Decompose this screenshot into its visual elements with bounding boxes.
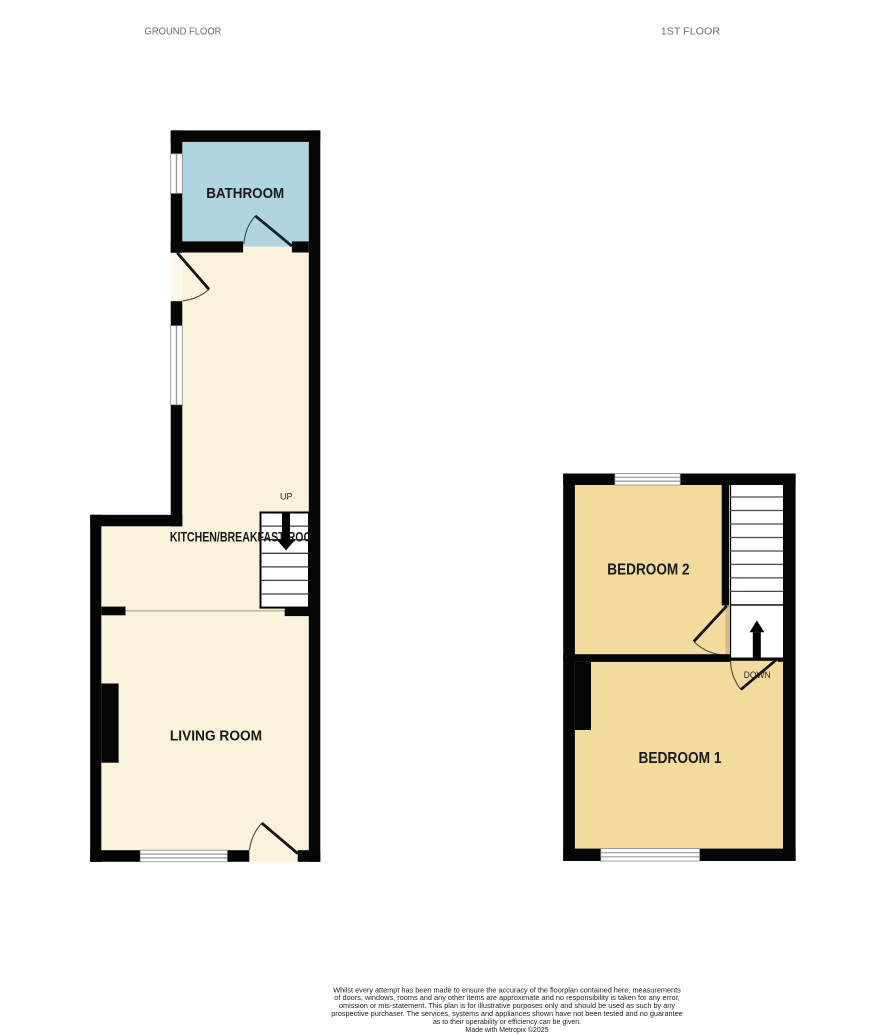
svg-text:UP: UP xyxy=(280,491,293,502)
svg-text:BEDROOM 1: BEDROOM 1 xyxy=(638,750,722,767)
svg-text:DOWN: DOWN xyxy=(744,670,771,680)
svg-text:GROUND FLOOR: GROUND FLOOR xyxy=(145,26,222,38)
svg-text:Made with Metropix ©2025: Made with Metropix ©2025 xyxy=(466,1025,549,1034)
svg-text:BEDROOM 2: BEDROOM 2 xyxy=(607,562,689,579)
svg-text:LIVING ROOM: LIVING ROOM xyxy=(170,728,262,745)
svg-text:KITCHEN/BREAKFAST ROOM: KITCHEN/BREAKFAST ROOM xyxy=(170,529,321,545)
svg-text:1ST FLOOR: 1ST FLOOR xyxy=(661,26,721,38)
svg-text:BATHROOM: BATHROOM xyxy=(206,185,284,202)
